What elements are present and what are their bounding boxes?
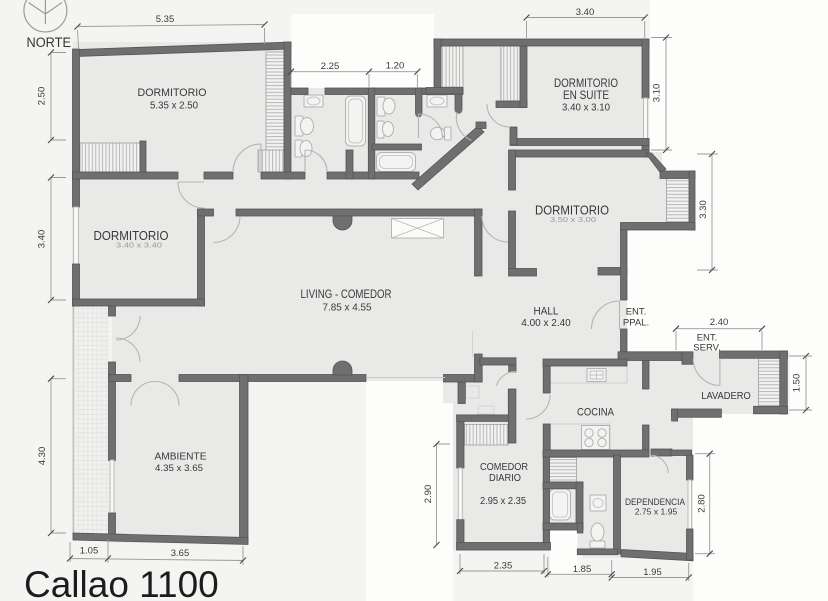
svg-text:2.75 x 1.95: 2.75 x 1.95 (635, 508, 678, 517)
svg-text:2.95 x 2.35: 2.95 x 2.35 (480, 496, 526, 507)
svg-text:Callao 1100: Callao 1100 (24, 564, 219, 601)
svg-text:7.85 x 4.55: 7.85 x 4.55 (323, 302, 372, 314)
svg-text:SERV.: SERV. (693, 343, 720, 354)
svg-text:1.05: 1.05 (80, 546, 99, 557)
svg-text:5.35: 5.35 (156, 14, 175, 25)
svg-text:5.35 x 2.50: 5.35 x 2.50 (150, 101, 198, 112)
svg-text:2.90: 2.90 (423, 485, 434, 504)
svg-text:2.35: 2.35 (494, 561, 513, 572)
svg-text:ENT.: ENT. (626, 307, 647, 318)
svg-text:2.80: 2.80 (697, 494, 708, 513)
svg-text:3.65: 3.65 (171, 548, 190, 559)
svg-text:3.30: 3.30 (698, 200, 709, 219)
svg-text:1.95: 1.95 (643, 567, 662, 578)
svg-text:3.50 x 3.00: 3.50 x 3.00 (550, 215, 596, 224)
svg-text:DORMITORIO: DORMITORIO (554, 76, 618, 90)
svg-text:DORMITORIO: DORMITORIO (138, 87, 207, 99)
svg-text:EN SUITE: EN SUITE (563, 90, 609, 102)
svg-text:2.50: 2.50 (37, 87, 48, 106)
svg-text:2.25: 2.25 (321, 61, 340, 72)
svg-text:4.30: 4.30 (37, 447, 48, 466)
svg-text:1.85: 1.85 (573, 564, 592, 575)
svg-text:LIVING - COMEDOR: LIVING - COMEDOR (301, 287, 392, 301)
svg-text:COCINA: COCINA (577, 407, 615, 419)
svg-text:3.40 x 3.40: 3.40 x 3.40 (116, 241, 162, 250)
svg-text:NORTE: NORTE (27, 35, 72, 50)
svg-text:DEPENDENCIA: DEPENDENCIA (625, 497, 685, 507)
svg-text:1.20: 1.20 (386, 61, 405, 72)
svg-text:DIARIO: DIARIO (489, 472, 521, 484)
svg-text:2.40: 2.40 (710, 317, 729, 328)
svg-text:4.00 x 2.40: 4.00 x 2.40 (521, 317, 571, 329)
svg-text:HALL: HALL (534, 306, 559, 318)
svg-text:3.10: 3.10 (652, 84, 663, 103)
svg-text:3.40: 3.40 (37, 230, 48, 249)
svg-text:PPAL.: PPAL. (623, 318, 649, 329)
svg-text:4.35 x 3.65: 4.35 x 3.65 (155, 463, 203, 474)
svg-text:3.40 x 3.10: 3.40 x 3.10 (562, 102, 610, 114)
svg-text:LAVADERO: LAVADERO (701, 390, 751, 402)
svg-text:AMBIENTE: AMBIENTE (155, 452, 207, 463)
svg-text:3.40: 3.40 (576, 7, 595, 18)
svg-text:1.50: 1.50 (792, 374, 803, 393)
